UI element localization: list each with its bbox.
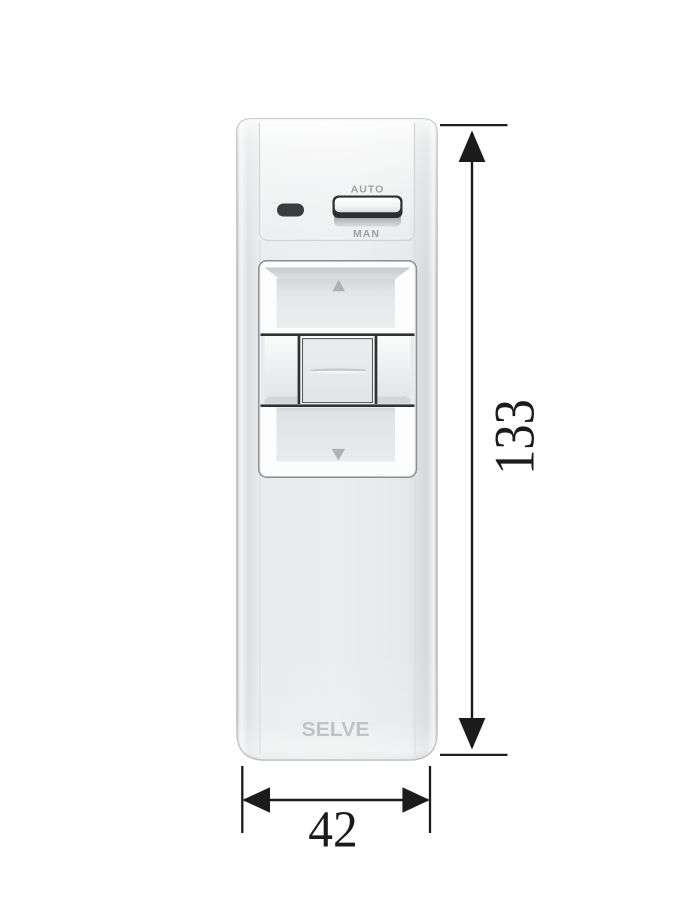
svg-text:SELVE: SELVE	[302, 719, 370, 741]
svg-text:MAN: MAN	[353, 228, 380, 240]
svg-text:AUTO: AUTO	[351, 184, 385, 196]
svg-text:42: 42	[308, 802, 358, 859]
svg-text:133: 133	[484, 399, 547, 475]
